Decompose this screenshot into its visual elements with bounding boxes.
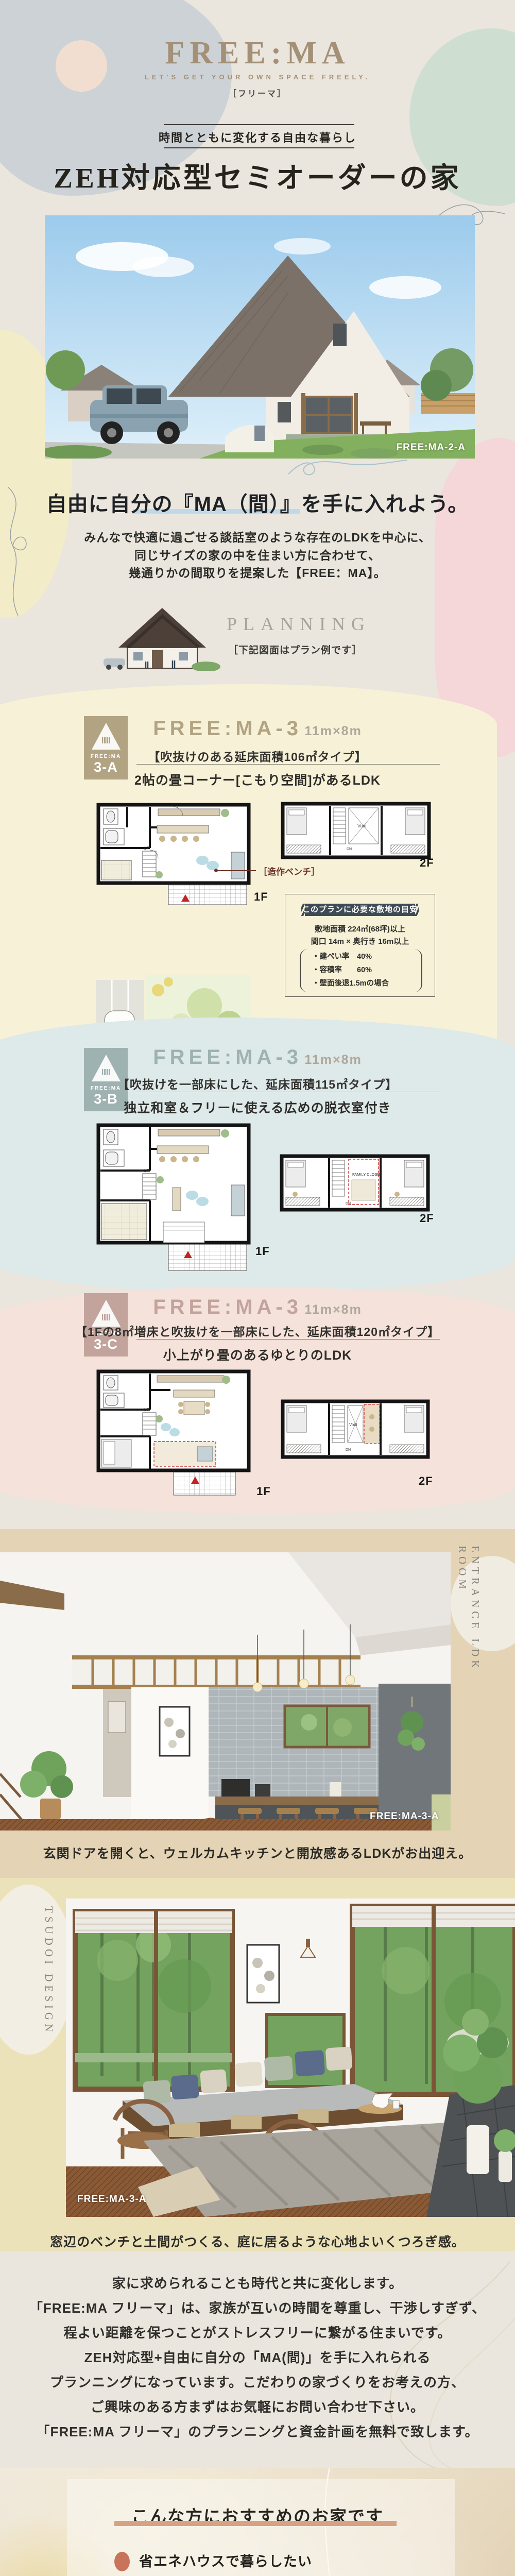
interior-1-vertical-label: ENTRANCE LDK ROOM <box>456 1546 482 1710</box>
plan-c-type: 【1Fの8㎡増床と吹抜けを一部床にした、延床面積120㎡タイプ】 <box>0 1322 515 1340</box>
plan-b-2f: DN FAMILY CLOSET <box>280 1154 430 1212</box>
recommend-item-1: 省エネハウスで暮らしたい <box>114 2551 312 2572</box>
plan-c-heading: FREE:MA-3 11m×8m <box>0 1296 515 1319</box>
interior-photo-1-art <box>0 1552 451 1831</box>
hero-caption: FREE:MA-2-A <box>397 442 466 453</box>
plan-c-1f-label: 1F <box>256 1485 271 1498</box>
plan-b-1f-label: 1F <box>255 1245 270 1258</box>
plan-b-type: 【吹抜けを一部床にした、延床面積115㎡タイプ】 <box>0 1075 515 1092</box>
recommend-item-1-text: 省エネハウスで暮らしたい <box>139 2554 312 2569</box>
message-line-4: ZEH対応型+自由に自分の「MA(間)」を手に入れられる <box>0 2347 515 2366</box>
brand-logo: FREE:MA <box>0 35 515 72</box>
interior-2-vertical-label: TSUDOI DESIGN <box>42 1906 55 2040</box>
svg-text:DN: DN <box>346 1448 351 1452</box>
planning-note: ［下記図面はプラン例です］ <box>228 642 362 656</box>
site-area-line: 敷地面積 224㎡(68坪)以上 <box>285 923 435 934</box>
plan-b-2f-label: 2F <box>420 1212 434 1225</box>
plan-a-feature: 2帖の畳コーナー[こもり空間]があるLDK <box>0 770 515 789</box>
bracket-right <box>414 949 422 992</box>
plan-a-heading: FREE:MA-3 11m×8m <box>0 717 515 740</box>
site-box-title: このプランに必要な敷地の目安 <box>301 904 419 916</box>
svg-text:Void: Void <box>357 823 367 828</box>
interior-1-caption: 玄関ドアを開くと、ウェルカムキッチンと開放感あるLDKがお出迎え。 <box>0 1843 515 1862</box>
plan-c-name: FREE:MA-3 <box>153 1296 302 1318</box>
message-line-2: 「FREE:MA フリーマ」は、家族が互いの時間を尊重し、干渉しすぎず、 <box>0 2298 515 2317</box>
plan-b-size: 11m×8m <box>304 1053 362 1067</box>
intro-line-3: 幾通りかの間取りを提案した【FREE：MA】。 <box>0 563 515 581</box>
site-requirements-box: このプランに必要な敷地の目安 敷地面積 224㎡(68坪)以上 間口 14m ×… <box>285 894 435 997</box>
plan-a-divider <box>136 764 440 765</box>
header-rule-top <box>164 124 354 125</box>
intro-line-2: 同じサイズの家の中を住まい方に合わせて、 <box>0 546 515 563</box>
message-line-5: プランニングになっています。こだわりの家づくりをお考えの方、 <box>0 2372 515 2391</box>
tape-right <box>415 903 422 917</box>
message-line-3: 程よい距離を保つことがストレスフリーに繋がる住まいです。 <box>0 2323 515 2342</box>
interior-photo-2-art <box>66 1899 515 2217</box>
plan-b-name: FREE:MA-3 <box>153 1046 302 1069</box>
svg-text:DN: DN <box>347 848 352 851</box>
interior-1-caption-on-photo: FREE:MA-3-A <box>370 1811 439 1822</box>
plan-b-1f: UP <box>96 1123 251 1274</box>
header-boxed-copy: 時間とともに変化する自由な暮らし <box>0 129 515 145</box>
svg-text:DN: DN <box>346 1202 351 1206</box>
page-title: ZEH対応型セミオーダーの家 <box>0 155 515 196</box>
site-condition-2: ・容積率 60% <box>312 963 389 977</box>
plan-a-2f-label: 2F <box>420 856 434 870</box>
plan-c-size: 11m×8m <box>304 1302 362 1317</box>
plan-a-name: FREE:MA-3 <box>153 717 302 740</box>
bench-annotation: ［造作ベンチ］ <box>259 865 320 877</box>
plan-a-2f: Void DN <box>281 802 431 859</box>
svg-text:UP: UP <box>144 1168 149 1173</box>
interior-2-caption-on-photo: FREE:MA-3-A <box>77 2194 147 2205</box>
message-line-1: 家に求められることも時代と共に変化します。 <box>0 2273 515 2292</box>
plan-c-2f-label: 2F <box>419 1475 433 1488</box>
tape-left <box>298 903 305 917</box>
plan-b-heading: FREE:MA-3 11m×8m <box>0 1046 515 1069</box>
recommend-title-underline <box>114 2521 397 2526</box>
hero-photo: FREE:MA-2-A <box>45 215 475 459</box>
hero-photo-art <box>45 215 475 459</box>
plan-a-type: 【吹抜けのある延床面積106㎡タイプ】 <box>0 747 515 765</box>
site-condition-3: ・壁面後退1.5mの場合 <box>312 977 389 990</box>
plan-b-divider <box>136 1092 440 1092</box>
svg-text:FAMILY CLOSET: FAMILY CLOSET <box>352 1172 382 1177</box>
decor-swirl-mid <box>286 456 409 482</box>
message-line-7: 「FREE:MA フリーマ」のプランニングと資金計画を無料で致します。 <box>0 2421 515 2441</box>
bullet-circle-icon <box>114 2552 130 2571</box>
flyer-page: FREE:MA LET'S GET YOUR OWN SPACE FREELY.… <box>0 0 515 2576</box>
plan-c-blob <box>0 1287 515 1514</box>
svg-text:Void: Void <box>349 1422 357 1427</box>
plan-a-1f-label: 1F <box>254 890 268 904</box>
planning-house-illustration <box>100 599 224 671</box>
bracket-left <box>300 949 308 992</box>
bench-annotation-line <box>217 870 256 871</box>
brand-tagline: LET'S GET YOUR OWN SPACE FREELY. <box>0 73 515 81</box>
interior-photo-1 <box>0 1552 451 1831</box>
plan-c-divider <box>136 1339 440 1340</box>
plan-c-1f: UP <box>96 1369 253 1499</box>
intro-heading: 自由に自分の『MA（間）』を手に入れよう。 <box>0 487 515 517</box>
plan-c-feature: 小上がり畳のあるゆとりのLDK <box>0 1345 515 1364</box>
svg-text:UP: UP <box>144 1408 149 1412</box>
plan-c-2f: Void DN <box>281 1399 430 1459</box>
interior-photo-2 <box>66 1899 515 2217</box>
brand-kana: ［フリーマ］ <box>0 87 515 99</box>
intro-line-1: みんなで快適に過ごせる談話室のような存在のLDKを中心に、 <box>0 528 515 545</box>
message-line-6: ご興味のある方まずはお気軽にお問い合わせ下さい。 <box>0 2397 515 2416</box>
site-conditions: ・建ぺい率 40% ・容積率 60% ・壁面後退1.5mの場合 <box>312 950 389 990</box>
plan-b-feature: 独立和室＆フリーに使える広めの脱衣室付き <box>0 1098 515 1116</box>
interior-2-caption: 窓辺のベンチと土間がつくる、庭に居るような心地よいくつろぎ感。 <box>0 2232 515 2250</box>
plan-a-1f: UP <box>96 803 251 908</box>
svg-text:UP: UP <box>144 846 149 851</box>
planning-title: PLANNING <box>227 613 371 635</box>
site-condition-1: ・建ぺい率 40% <box>312 950 389 963</box>
plan-a-size: 11m×8m <box>304 724 362 738</box>
header-rule-bottom <box>164 147 354 148</box>
site-frontage-line: 間口 14m × 奥行き 16m以上 <box>285 936 435 946</box>
